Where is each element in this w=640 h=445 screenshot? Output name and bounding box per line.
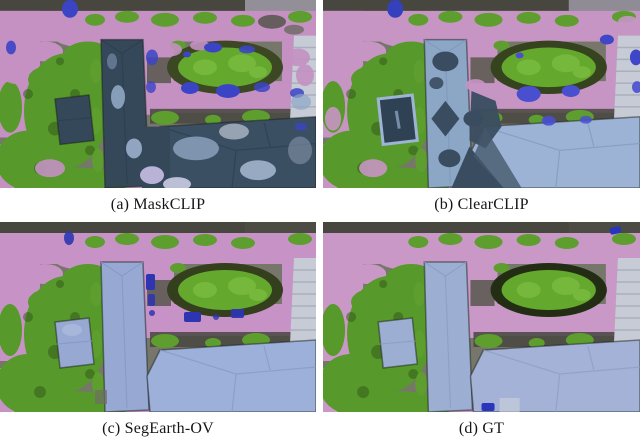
caption-gt: (d) GT [323,412,640,445]
segmentation-image-clearclip [323,0,640,188]
figure-grid: (a) MaskCLIP (b) ClearCLIP [0,0,640,445]
segmentation-image-gt [323,222,640,412]
panel-segearth-ov [0,222,316,412]
caption-segearth-ov: (c) SegEarth-OV [0,412,316,445]
caption-maskclip: (a) MaskCLIP [0,188,316,222]
segmentation-image-segearth-ov [0,222,316,412]
caption-clearclip: (b) ClearCLIP [323,188,640,222]
panel-maskclip [0,0,316,188]
segmentation-image-maskclip [0,0,316,188]
panel-clearclip [323,0,640,188]
panel-gt [323,222,640,412]
